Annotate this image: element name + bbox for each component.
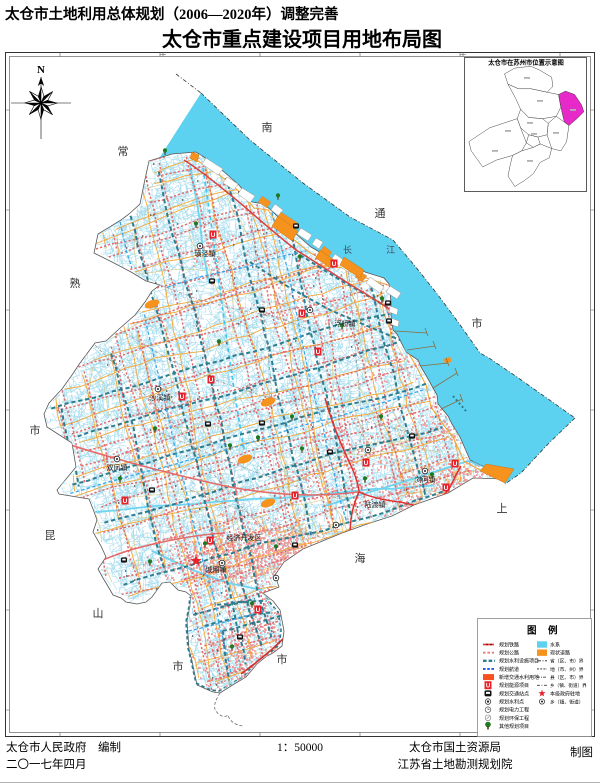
- svg-text:水系: 水系: [550, 641, 560, 648]
- svg-text:县（区、市）界: 县（区、市）界: [550, 674, 584, 681]
- svg-text:图: 图: [527, 626, 537, 637]
- svg-text:江苏省土地勘测规划院: 江苏省土地勘测规划院: [398, 757, 513, 771]
- svg-text:U: U: [293, 493, 298, 500]
- svg-text:太仓市重点建设项目用地布局图: 太仓市重点建设项目用地布局图: [162, 27, 442, 51]
- svg-text:市: 市: [30, 423, 41, 437]
- svg-text:南: 南: [262, 121, 273, 134]
- svg-text:U: U: [208, 538, 213, 545]
- svg-text:规划交通站点: 规划交通站点: [499, 690, 529, 697]
- svg-text:省（区、市）界: 省（区、市）界: [550, 658, 584, 665]
- svg-text:U: U: [123, 498, 128, 505]
- svg-text:例: 例: [548, 625, 558, 637]
- svg-text:璜泾镇: 璜泾镇: [195, 249, 216, 258]
- svg-text:规划能源项目: 规划能源项目: [499, 682, 529, 689]
- svg-text:沙溪镇: 沙溪镇: [150, 393, 171, 402]
- svg-text:新增交通水利用地: 新增交通水利用地: [499, 674, 539, 681]
- svg-text:通: 通: [375, 207, 386, 220]
- svg-text:规划航道: 规划航道: [499, 666, 519, 673]
- svg-text:规划水利点: 规划水利点: [499, 698, 524, 705]
- svg-text:乡（镇、街道）: 乡（镇、街道）: [550, 698, 584, 705]
- svg-text:U: U: [209, 377, 214, 384]
- svg-text:地（市、州）界: 地（市、州）界: [550, 666, 584, 673]
- svg-text:U: U: [211, 232, 216, 239]
- svg-text:常: 常: [118, 145, 129, 158]
- svg-text:其他规划项目: 其他规划项目: [499, 723, 529, 730]
- svg-text:U: U: [486, 683, 490, 689]
- svg-text:N: N: [37, 64, 45, 76]
- svg-text:规划电力工程: 规划电力工程: [499, 707, 529, 714]
- svg-text:市: 市: [173, 659, 184, 673]
- svg-text:U: U: [444, 485, 449, 492]
- svg-text:U: U: [256, 607, 261, 614]
- svg-text:规划公路: 规划公路: [499, 650, 519, 657]
- svg-text:现状道路: 现状道路: [550, 650, 570, 657]
- svg-text:太仓市国土资源局: 太仓市国土资源局: [409, 740, 501, 754]
- svg-text:海: 海: [355, 551, 366, 565]
- svg-text:太仓市在苏州市位置示意图: 太仓市在苏州市位置示意图: [488, 58, 564, 67]
- svg-text:二〇一七年四月: 二〇一七年四月: [6, 757, 87, 771]
- svg-text:市: 市: [472, 316, 483, 330]
- svg-text:昆: 昆: [45, 529, 56, 542]
- svg-text:上: 上: [497, 502, 508, 515]
- svg-text:1：50000: 1：50000: [277, 742, 323, 754]
- svg-text:市: 市: [277, 652, 288, 666]
- svg-text:太仓市土地利用总体规划（2006—2020年）调整完善: 太仓市土地利用总体规划（2006—2020年）调整完善: [5, 5, 339, 23]
- svg-text:规划水利设施项目: 规划水利设施项目: [499, 658, 539, 665]
- svg-text:浮桥镇: 浮桥镇: [335, 319, 356, 328]
- svg-text:本级政府驻地: 本级政府驻地: [550, 690, 580, 697]
- svg-text:U: U: [364, 460, 369, 467]
- svg-text:U: U: [453, 461, 458, 468]
- svg-text:乡（镇、街道）界: 乡（镇、街道）界: [550, 682, 587, 689]
- svg-text:规划环保工程: 规划环保工程: [499, 715, 529, 722]
- svg-text:陆渡镇: 陆渡镇: [365, 500, 386, 509]
- svg-text:浏河镇: 浏河镇: [415, 475, 436, 484]
- svg-text:太仓市人民政府 编制: 太仓市人民政府 编制: [6, 740, 121, 754]
- svg-text:规划铁路: 规划铁路: [499, 641, 519, 648]
- svg-text:制图: 制图: [570, 746, 593, 759]
- svg-text:经济开发区: 经济开发区: [227, 533, 262, 542]
- svg-text:U: U: [180, 394, 185, 401]
- svg-text:U: U: [300, 311, 305, 318]
- svg-text:U: U: [332, 261, 337, 268]
- svg-text:城厢镇: 城厢镇: [206, 565, 227, 574]
- svg-text:双凤镇: 双凤镇: [107, 463, 128, 472]
- svg-text:U: U: [316, 349, 321, 356]
- svg-text:山: 山: [93, 607, 104, 620]
- svg-text:熟: 熟: [70, 276, 81, 290]
